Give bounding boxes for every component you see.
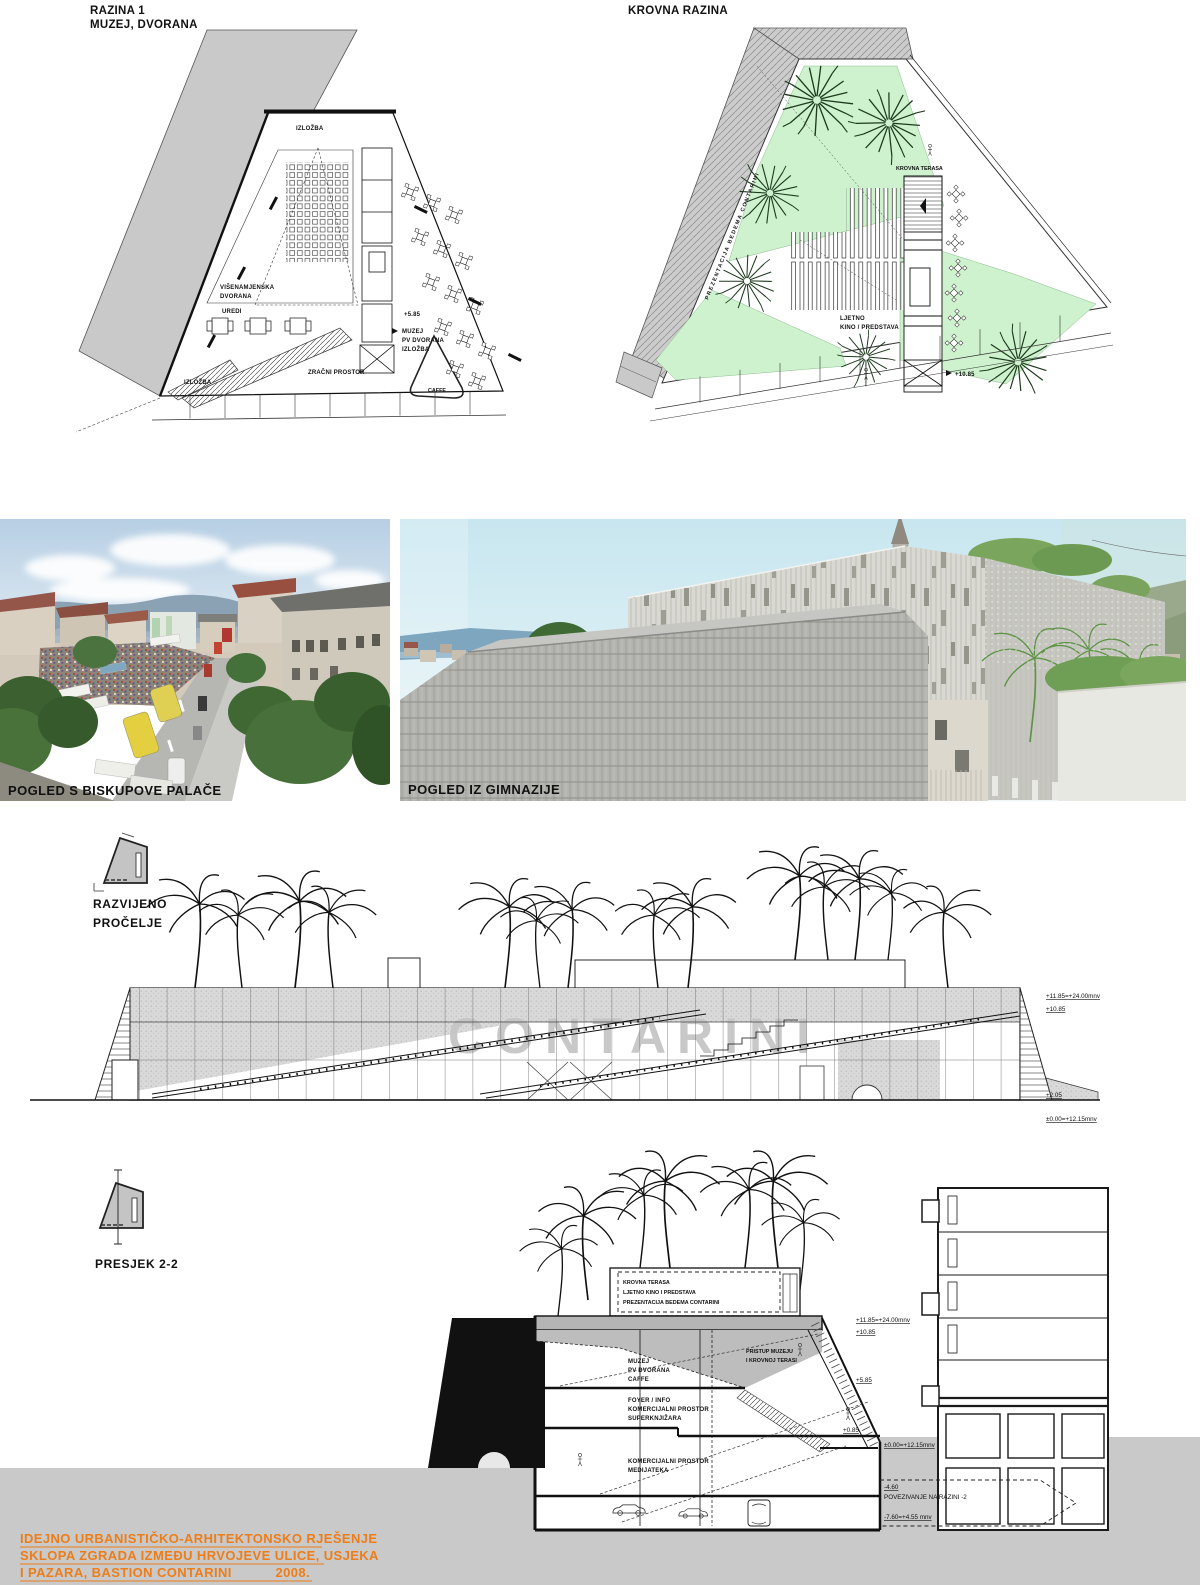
section-foyer-3: SUPERKNJIŽARA	[628, 1414, 682, 1422]
section-foyer-1: FOYER / INFO	[628, 1398, 671, 1404]
right-foreground-building	[1045, 656, 1200, 801]
section-muzej-1: MUZEJ	[628, 1359, 649, 1365]
photo-right-caption: POGLED IZ GIMNAZIJE	[408, 782, 560, 797]
section-roofbox-2: LJETNO KINO I PREDSTAVA	[623, 1290, 696, 1296]
section-roofbox-3: PREZENTACIJA BEDEMA CONTARINI	[623, 1300, 720, 1306]
roof-label-terasa: KROVNA TERASA	[896, 166, 943, 172]
neighbour-building	[922, 1188, 1108, 1530]
plan1-label-zracni: ZRAČNI PROSTOR	[308, 369, 365, 376]
project-year: 2008.	[275, 1565, 310, 1580]
plan1-label-muzej3: IZLOŽBA	[402, 345, 430, 353]
plan1-label-muzej2: PV DVORANA	[402, 338, 444, 344]
plan1-label-level: +5.85	[404, 312, 421, 318]
project-title-line1: IDEJNO URBANISTIČKO-ARHITEKTONSKO RJEŠEN…	[20, 1531, 378, 1546]
plan1-label-izlozba-bottom: IZLOŽBA	[184, 378, 212, 386]
section-foyer-2: KOMERCIJALNI PROSTOR	[628, 1407, 709, 1413]
roof-slab	[535, 1316, 822, 1330]
roof-stair-core	[904, 176, 942, 392]
roof-label-ljetno1: LJETNO	[840, 316, 865, 322]
section-level-roof: +10.85	[856, 1329, 876, 1336]
section-level-m7: -7.60=+4.55 mnv	[884, 1514, 932, 1521]
section-label: PRESJEK 2-2	[95, 1257, 178, 1271]
section-level-m4: -4.60	[884, 1484, 899, 1491]
elevation-level-top: +11.85=+24.00mnv	[1046, 993, 1101, 1000]
plan1-label-caffe: CAFFE	[428, 388, 446, 394]
elevation-level-roof: +10.85	[1046, 1006, 1066, 1013]
section-povezivanje: POVEZIVANJE NA RAZINI -2	[884, 1494, 967, 1501]
plan1-title-line1: RAZINA 1	[90, 5, 145, 17]
photo-gimnazija-render: POGLED IZ GIMNAZIJE	[400, 512, 1200, 802]
section-level-zero: ±0.00=+12.15mnv	[884, 1442, 936, 1449]
plan1-label-hall2: DVORANA	[220, 294, 252, 300]
section-pristup-2: I KROVNOJ TERASI	[746, 1358, 797, 1364]
elevation-level-zero: ±0.00=+12.15mnv	[1046, 1116, 1098, 1123]
section-roofbox-1: KROVNA TERASA	[623, 1280, 670, 1286]
section-level-ulaz: +0.85	[843, 1427, 859, 1434]
elevation-level-street: +2.05	[1046, 1092, 1062, 1099]
elevation-label-2: PROČELJE	[93, 915, 162, 930]
plan1-office-desks	[207, 318, 311, 334]
project-title-line2: SKLOPA ZGRADA IZMEĐU HRVOJEVE ULICE, USJ…	[20, 1548, 379, 1563]
roof-label-ljetno2: KINO / PREDSTAVA	[840, 325, 899, 331]
plan1-title-line2: MUZEJ, DVORANA	[90, 19, 198, 31]
section-level-top: +11.85=+24.00mnv	[856, 1317, 911, 1324]
roof-title: KROVNA RAZINA	[628, 5, 728, 17]
section-muzej-3: CAFFE	[628, 1377, 649, 1383]
plan1-label-hall1: VIŠENAMJENSKA	[220, 283, 275, 291]
section-pristup-1: PRISTUP MUZEJU	[746, 1349, 793, 1355]
plan1-hall-seating	[286, 162, 350, 262]
photo-left-caption: POGLED S BISKUPOVE PALAČE	[8, 783, 221, 798]
presentation-board: RAZINA 1 MUZEJ, DVORANA	[0, 0, 1200, 1585]
plan1-label-uredi: UREDI	[222, 309, 242, 315]
section-level-muzej: +5.85	[856, 1377, 872, 1384]
plan1-label-izlozba-top: IZLOŽBA	[296, 124, 324, 132]
section-muzej-2: PV DVORANA	[628, 1368, 670, 1374]
section-komerc-2: MEDIJATEKA	[628, 1468, 669, 1474]
plan1-label-muzej1: MUZEJ	[402, 329, 423, 335]
project-title-line3: I PAZARA, BASTION CONTARINI	[20, 1565, 232, 1580]
roof-label-level: +10.85	[955, 372, 975, 378]
section-komerc-1: KOMERCIJALNI PROSTOR	[628, 1459, 709, 1465]
elevation-left-door	[112, 1060, 138, 1100]
elevation-label-1: RAZVIJENO	[93, 897, 167, 911]
